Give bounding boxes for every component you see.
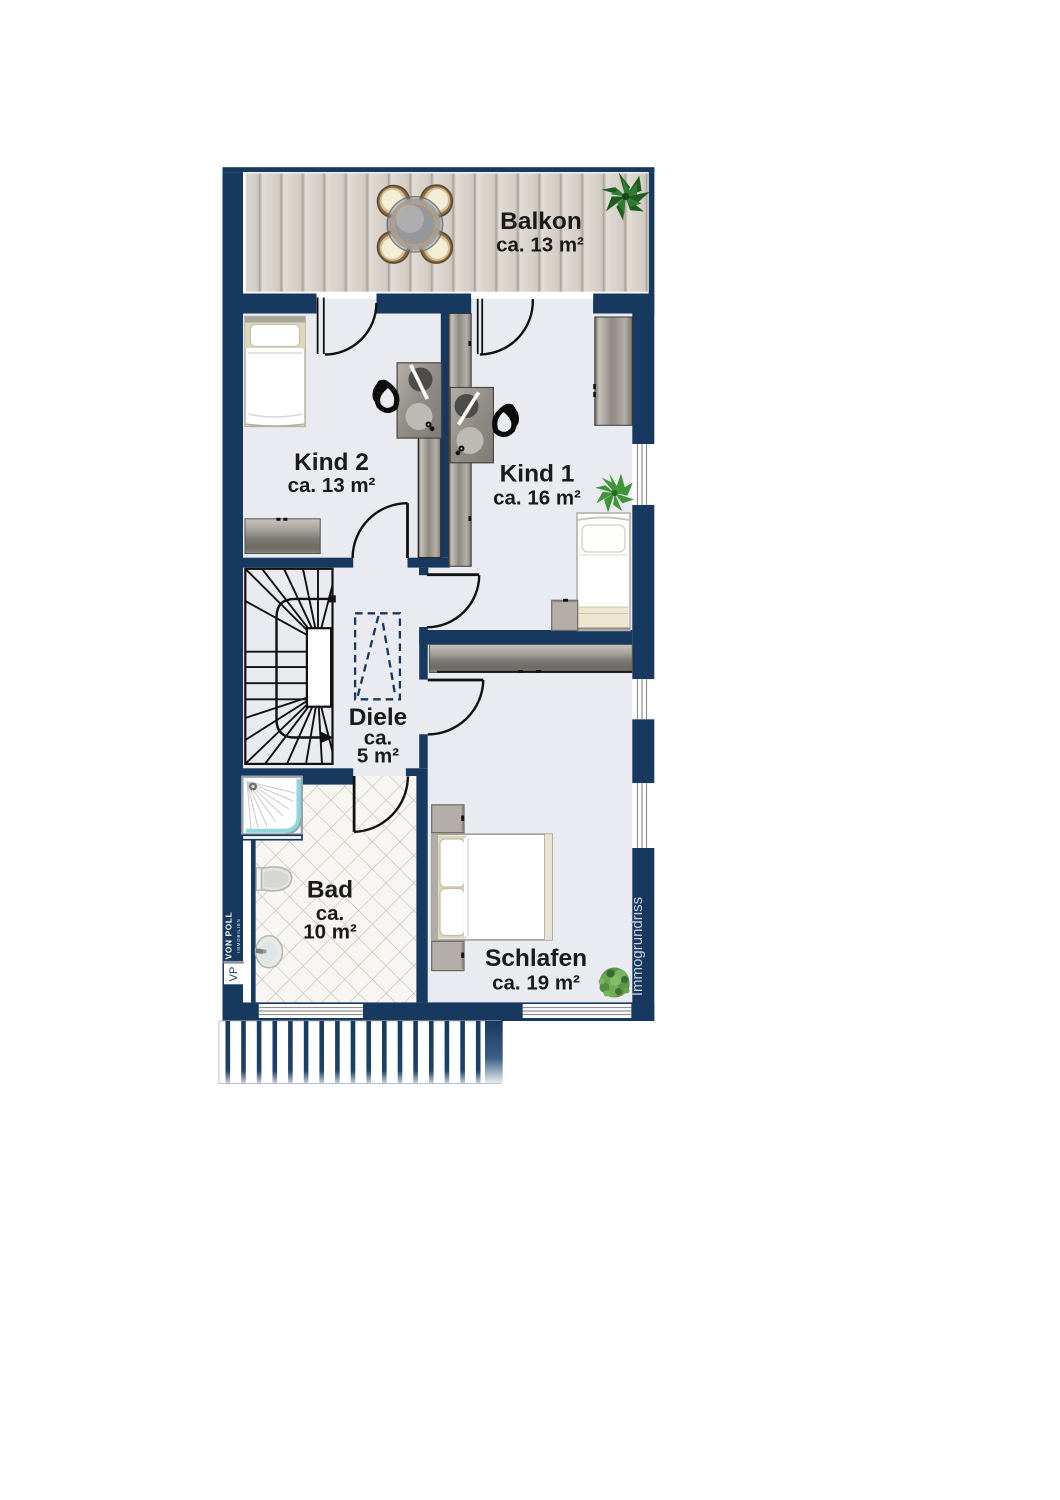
svg-text:VON POLL: VON POLL <box>224 912 234 960</box>
svg-text:ca. 19 m²: ca. 19 m² <box>492 972 580 995</box>
svg-text:Immogrundriss: Immogrundriss <box>629 897 646 996</box>
svg-text:VP: VP <box>228 967 240 982</box>
svg-text:10 m²: 10 m² <box>303 921 357 944</box>
svg-text:ca. 13 m²: ca. 13 m² <box>288 474 376 497</box>
svg-text:Bad: Bad <box>307 877 353 904</box>
svg-text:Kind 2: Kind 2 <box>294 449 369 476</box>
svg-text:Kind 1: Kind 1 <box>500 461 575 488</box>
svg-text:ca. 16 m²: ca. 16 m² <box>493 487 581 510</box>
svg-text:ca. 13 m²: ca. 13 m² <box>496 234 584 257</box>
svg-text:Schlafen: Schlafen <box>485 945 587 972</box>
svg-text:Balkon: Balkon <box>500 208 582 235</box>
svg-text:5 m²: 5 m² <box>357 745 399 768</box>
svg-text:IMMOBILIEN: IMMOBILIEN <box>236 918 241 953</box>
